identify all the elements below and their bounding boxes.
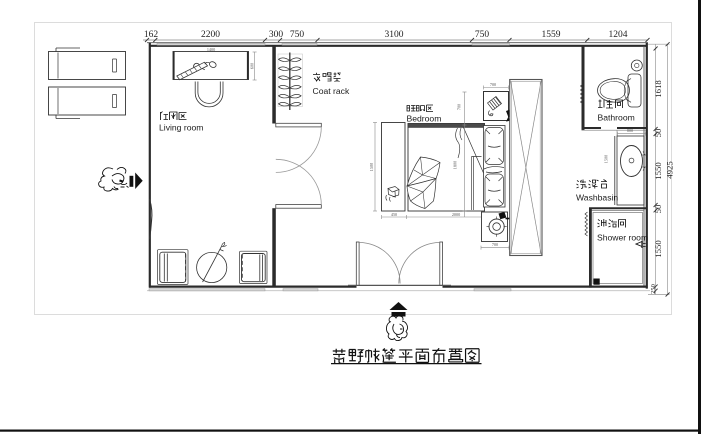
svg-text:Washbasin: Washbasin (576, 193, 618, 203)
svg-text:1500: 1500 (369, 163, 374, 171)
svg-text:450: 450 (391, 212, 397, 217)
svg-text:Bedroom: Bedroom (407, 114, 442, 124)
svg-text:1550: 1550 (653, 162, 663, 180)
svg-text:700: 700 (492, 242, 498, 247)
svg-text:1800: 1800 (453, 161, 458, 169)
svg-text:1550: 1550 (653, 240, 663, 258)
svg-text:4925: 4925 (665, 161, 675, 179)
svg-text:2000: 2000 (452, 212, 460, 217)
svg-text:1559: 1559 (542, 30, 561, 40)
svg-text:2200: 2200 (201, 30, 220, 40)
svg-text:1618: 1618 (653, 80, 663, 98)
svg-text:600: 600 (249, 63, 254, 69)
svg-text:Living room: Living room (159, 123, 203, 133)
svg-text:50: 50 (653, 128, 663, 137)
svg-text:1500: 1500 (604, 155, 609, 163)
svg-text:Shower room: Shower room (597, 233, 648, 243)
svg-text:3100: 3100 (385, 30, 404, 40)
svg-text:1204: 1204 (609, 30, 628, 40)
svg-text:Coat rack: Coat rack (313, 86, 350, 96)
svg-text:700: 700 (457, 104, 462, 110)
svg-text:1400: 1400 (207, 47, 215, 52)
svg-text:162: 162 (144, 30, 159, 40)
svg-text:250: 250 (650, 284, 657, 294)
svg-text:700: 700 (490, 82, 496, 87)
svg-text:750: 750 (290, 30, 305, 40)
svg-text:Bathroom: Bathroom (598, 113, 635, 123)
svg-text:50: 50 (653, 204, 663, 213)
svg-text:300: 300 (269, 30, 284, 40)
svg-text:750: 750 (475, 30, 490, 40)
svg-text:800: 800 (627, 128, 633, 133)
